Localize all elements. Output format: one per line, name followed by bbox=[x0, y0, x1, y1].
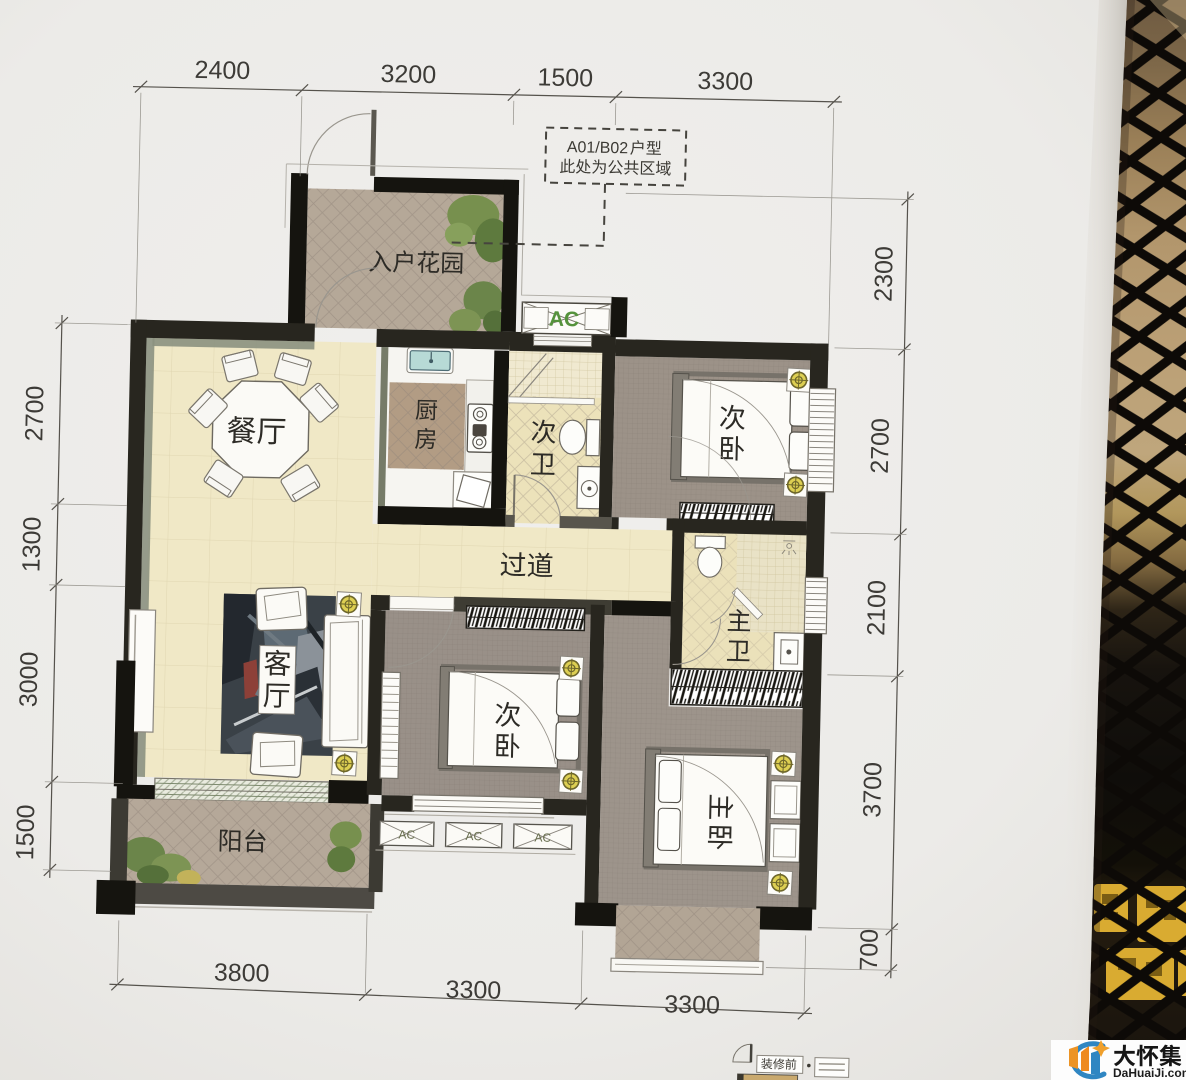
svg-text:2300: 2300 bbox=[870, 246, 899, 302]
svg-text:1500: 1500 bbox=[537, 63, 593, 92]
svg-text:A01/B02: A01/B02 bbox=[567, 139, 629, 157]
svg-text:3300: 3300 bbox=[445, 976, 501, 1005]
svg-text:2700: 2700 bbox=[20, 385, 49, 441]
svg-text:700: 700 bbox=[855, 929, 884, 971]
svg-text:DaHuaiJi.com: DaHuaiJi.com bbox=[1113, 1066, 1186, 1080]
svg-text:3000: 3000 bbox=[14, 651, 43, 707]
svg-text:AC: AC bbox=[398, 828, 415, 842]
svg-text:3800: 3800 bbox=[214, 959, 270, 988]
svg-text:3700: 3700 bbox=[858, 762, 887, 818]
svg-text:3300: 3300 bbox=[697, 67, 753, 96]
svg-text:1500: 1500 bbox=[11, 804, 40, 860]
svg-text:1300: 1300 bbox=[17, 516, 46, 572]
svg-text:2400: 2400 bbox=[194, 56, 250, 85]
svg-text:2700: 2700 bbox=[866, 418, 895, 474]
svg-text:2100: 2100 bbox=[862, 580, 891, 636]
svg-text:3200: 3200 bbox=[380, 60, 436, 89]
svg-text:AC: AC bbox=[549, 308, 580, 332]
svg-text:AC: AC bbox=[465, 829, 482, 843]
svg-text:3300: 3300 bbox=[664, 990, 720, 1019]
svg-text:AC: AC bbox=[534, 830, 551, 844]
